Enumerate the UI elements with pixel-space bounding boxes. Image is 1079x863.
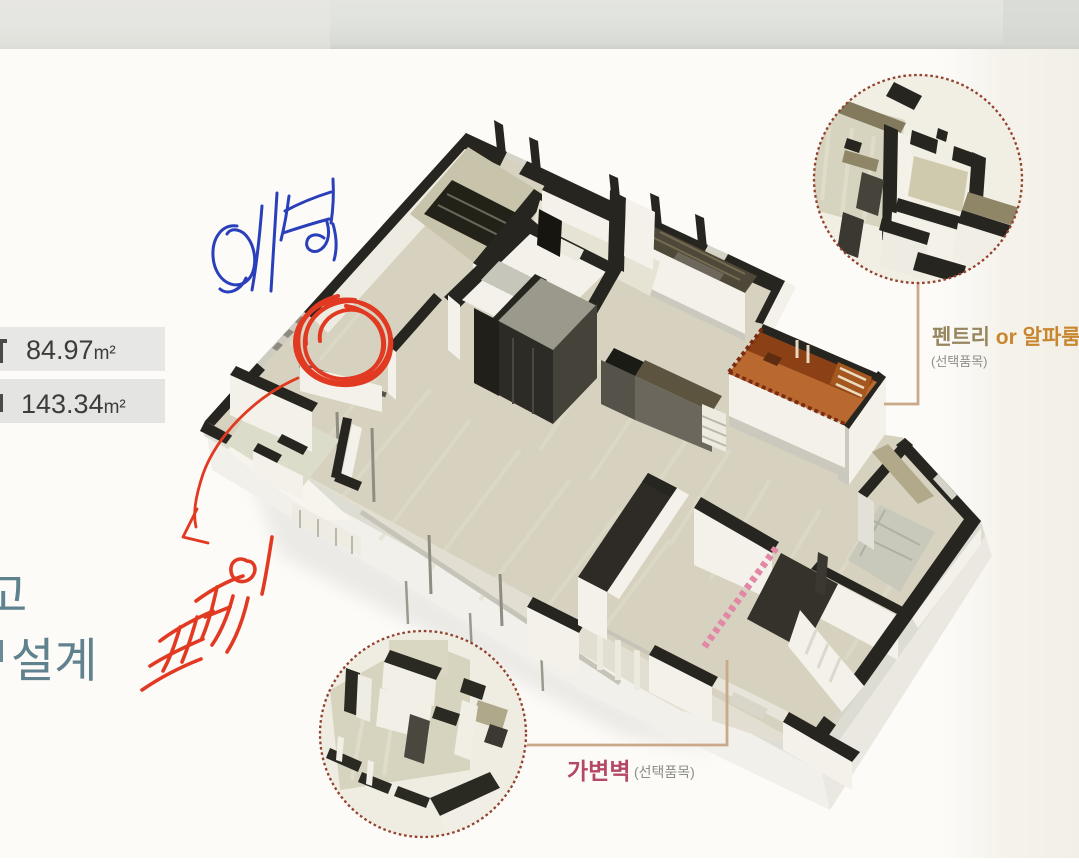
svg-text:설계: 설계 bbox=[11, 634, 97, 687]
svg-text:(선택품목): (선택품목) bbox=[634, 764, 695, 780]
svg-text:고: 고 bbox=[0, 569, 27, 622]
svg-text:가변벽: 가변벽 bbox=[567, 758, 630, 784]
svg-text:(선택품목): (선택품목) bbox=[931, 354, 988, 369]
svg-text:펜트리 or 알파룸: 펜트리 or 알파룸 bbox=[932, 326, 1079, 349]
